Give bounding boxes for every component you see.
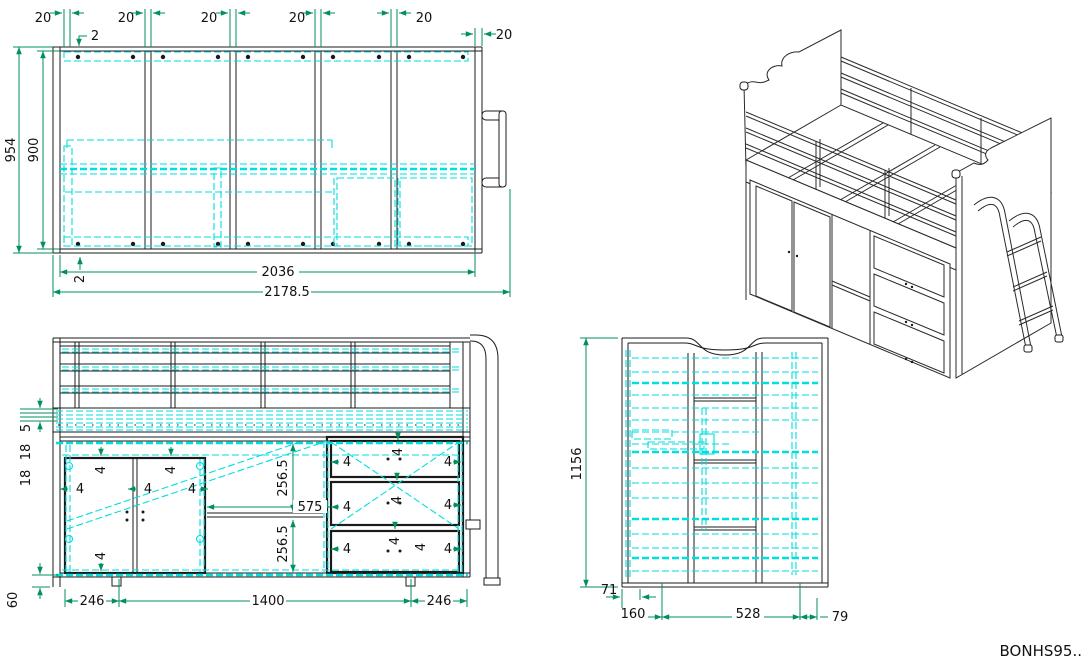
drawing-code-label: BONHS95..	[1000, 642, 1082, 660]
dim-ladder-overhang: 79	[832, 610, 849, 625]
dim-slat-spacing-2: 20	[118, 11, 135, 26]
iso-headboard-post-cap	[740, 82, 748, 90]
fastener-dots-top-row	[76, 55, 465, 59]
ladder-front-view	[466, 335, 500, 585]
side-view-dimensions: 1156 71 160 528 79	[570, 338, 848, 625]
dim-plinth: 60	[6, 592, 21, 609]
dim-panel-1: 4	[94, 466, 109, 474]
dim-panel-7: 4	[343, 455, 351, 470]
dim-opening-height-2: 256.5	[276, 525, 291, 562]
dim-slat-spacing-3: 20	[201, 11, 218, 26]
drawing-sheet: 20 20 20 20 20 20 2 954 900 2	[0, 0, 1088, 664]
dim-opening-width: 575	[298, 500, 323, 515]
top-view-structure	[53, 47, 506, 253]
dim-length-total: 2178.5	[264, 285, 310, 300]
dim-panel-12: 4	[444, 542, 452, 557]
dim-panel-8: 4	[444, 455, 452, 470]
isometric-view	[740, 30, 1063, 378]
dim-door-width-left: 246	[80, 594, 105, 609]
dim-edge-gap-bottom: 2	[73, 275, 88, 283]
dim-panel-13: 4	[391, 448, 406, 456]
dim-door-width-right: 246	[427, 594, 452, 609]
dim-height-total: 1156	[570, 447, 585, 480]
top-view-dimensions: 20 20 20 20 20 20 2 954 900 2	[4, 9, 512, 300]
cabinet-doors	[65, 458, 205, 573]
dim-panel-5: 4	[188, 482, 196, 497]
dim-opening-height-1: 256.5	[276, 459, 291, 496]
dim-depth-total: 954	[4, 138, 19, 163]
front-view: 5 18 18 60 256.5 256.5 575 246	[6, 335, 500, 609]
dim-panel-10: 4	[444, 498, 452, 513]
dim-depth-middle: 528	[736, 607, 761, 622]
dim-slat-spacing-1: 20	[35, 11, 52, 26]
dim-slat-spacing-right: 20	[496, 28, 513, 43]
dim-panel-11: 4	[343, 542, 351, 557]
dim-slat-spacing-4: 20	[289, 11, 306, 26]
dim-depth-inner: 900	[27, 138, 42, 163]
dim-panel-3: 4	[76, 482, 84, 497]
dim-offset-front: 71	[601, 583, 618, 598]
dim-panel-4: 4	[144, 482, 152, 497]
dim-panel-16: 4	[414, 543, 429, 551]
dim-panel-6: 4	[94, 552, 109, 560]
front-view-highlights	[56, 349, 468, 575]
side-view-highlights	[626, 350, 818, 580]
dim-panel-14: 4	[390, 496, 405, 504]
ladder-top-view	[482, 111, 506, 187]
dim-edge-gap-top: 2	[91, 29, 99, 44]
dim-panel-15: 4	[388, 537, 403, 545]
dim-depth-front: 160	[621, 607, 646, 622]
dim-rail-step-2: 18	[19, 470, 34, 487]
side-view: 1156 71 160 528 79	[570, 338, 848, 625]
dim-panel-9: 4	[343, 500, 351, 515]
top-view-highlights	[60, 52, 475, 247]
dim-panel-2: 4	[164, 466, 179, 474]
iso-footboard	[952, 118, 1051, 378]
dim-middle-width: 1400	[251, 594, 284, 609]
dim-length-inner: 2036	[261, 265, 294, 280]
dim-rail-step-1: 18	[19, 444, 34, 461]
side-view-structure	[622, 338, 828, 587]
dim-slat-spacing-5: 20	[416, 11, 433, 26]
dim-rail-gap: 5	[19, 424, 34, 432]
drawing-canvas: 20 20 20 20 20 20 2 954 900 2	[0, 0, 1088, 664]
top-view: 20 20 20 20 20 20 2 954 900 2	[4, 9, 512, 300]
